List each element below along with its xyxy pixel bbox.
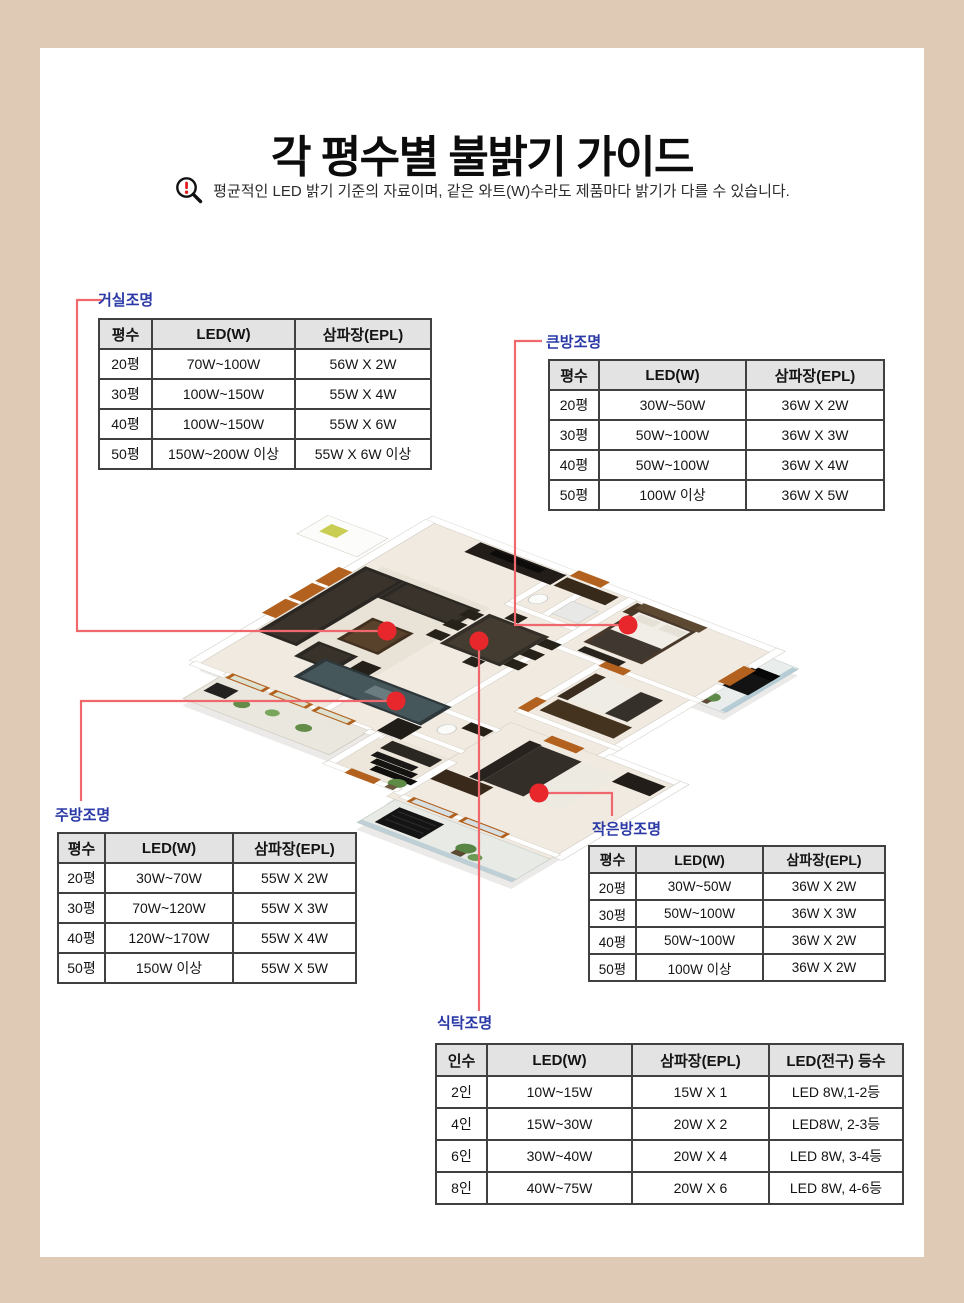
data-cell: 100W~150W: [152, 409, 295, 439]
data-cell: 20평: [58, 863, 105, 893]
header-cell: 삼파장(EPL): [632, 1044, 769, 1076]
table-row: 20평 70W~100W 56W X 2W: [99, 349, 431, 379]
header-cell: LED(W): [636, 846, 763, 873]
kitchen-table-label: 주방조명: [55, 804, 110, 825]
data-cell: 70W~100W: [152, 349, 295, 379]
data-cell: 55W X 3W: [233, 893, 356, 923]
data-cell: 20W X 4: [632, 1140, 769, 1172]
header-cell: 평수: [549, 360, 599, 390]
data-cell: 20평: [589, 873, 636, 900]
table-row: 40평 120W~170W 55W X 4W: [58, 923, 356, 953]
data-cell: 100W 이상: [599, 480, 746, 510]
data-cell: 50평: [99, 439, 152, 469]
data-cell: 36W X 2W: [746, 390, 884, 420]
data-cell: 70W~120W: [105, 893, 233, 923]
table-row: 30평 70W~120W 55W X 3W: [58, 893, 356, 923]
table-row: 30평 100W~150W 55W X 4W: [99, 379, 431, 409]
data-cell: 56W X 2W: [295, 349, 431, 379]
data-cell: 40평: [549, 450, 599, 480]
data-cell: 30평: [99, 379, 152, 409]
data-cell: 50W~100W: [636, 927, 763, 954]
bigroom-table-label: 큰방조명: [546, 331, 601, 352]
table-row: 6인 30W~40W 20W X 4 LED 8W, 3-4등: [436, 1140, 903, 1172]
data-cell: 20W X 2: [632, 1108, 769, 1140]
data-cell: 30평: [589, 900, 636, 927]
data-cell: 55W X 4W: [295, 379, 431, 409]
data-cell: 50W~100W: [599, 420, 746, 450]
data-cell: 20평: [549, 390, 599, 420]
table-row: 40평 50W~100W 36W X 2W: [589, 927, 885, 954]
data-cell: 30W~50W: [599, 390, 746, 420]
data-cell: 40평: [58, 923, 105, 953]
data-cell: 36W X 4W: [746, 450, 884, 480]
table-row: 20평 30W~50W 36W X 2W: [549, 390, 884, 420]
data-cell: 15W X 1: [632, 1076, 769, 1108]
data-cell: 40평: [589, 927, 636, 954]
data-cell: 40평: [99, 409, 152, 439]
data-cell: 36W X 2W: [763, 873, 885, 900]
data-cell: 6인: [436, 1140, 487, 1172]
magnifier-alert-icon: [174, 175, 204, 205]
data-cell: 50W~100W: [599, 450, 746, 480]
infographic-page: 각 평수별 불밝기 가이드 평균적인 LED 밝기 기준의 자료이며, 같은 와…: [0, 0, 964, 1303]
header-cell: LED(W): [487, 1044, 632, 1076]
bigroom-table: 평수 LED(W) 삼파장(EPL) 20평 30W~50W 36W X 2W …: [548, 359, 885, 511]
kitchen-table: 평수 LED(W) 삼파장(EPL) 20평 30W~70W 55W X 2W …: [57, 832, 357, 984]
data-cell: 20평: [99, 349, 152, 379]
smallroom-table-label: 작은방조명: [592, 818, 661, 839]
data-cell: 55W X 2W: [233, 863, 356, 893]
header-cell: 삼파장(EPL): [746, 360, 884, 390]
dining-table: 인수 LED(W) 삼파장(EPL) LED(전구) 등수 2인 10W~15W…: [435, 1043, 904, 1205]
data-cell: 36W X 2W: [763, 927, 885, 954]
table-row: 50평 100W 이상 36W X 2W: [589, 954, 885, 981]
data-cell: 55W X 6W: [295, 409, 431, 439]
header-cell: LED(W): [105, 833, 233, 863]
data-cell: 40W~75W: [487, 1172, 632, 1204]
data-cell: 20W X 6: [632, 1172, 769, 1204]
table-row: 40평 50W~100W 36W X 4W: [549, 450, 884, 480]
data-cell: 15W~30W: [487, 1108, 632, 1140]
table-row: 4인 15W~30W 20W X 2 LED8W, 2-3등: [436, 1108, 903, 1140]
header-cell: 평수: [589, 846, 636, 873]
data-cell: 8인: [436, 1172, 487, 1204]
data-cell: LED8W, 2-3등: [769, 1108, 903, 1140]
living-table-label: 거실조명: [98, 289, 153, 310]
data-cell: 30W~50W: [636, 873, 763, 900]
header-cell: 인수: [436, 1044, 487, 1076]
data-cell: 10W~15W: [487, 1076, 632, 1108]
living-table: 평수 LED(W) 삼파장(EPL) 20평 70W~100W 56W X 2W…: [98, 318, 432, 470]
data-cell: 150W 이상: [105, 953, 233, 983]
data-cell: 36W X 3W: [746, 420, 884, 450]
table-row: 50평 100W 이상 36W X 5W: [549, 480, 884, 510]
table-row: 20평 30W~50W 36W X 2W: [589, 873, 885, 900]
data-cell: 100W 이상: [636, 954, 763, 981]
header-cell: LED(W): [599, 360, 746, 390]
header-cell: 삼파장(EPL): [233, 833, 356, 863]
header-cell: LED(W): [152, 319, 295, 349]
data-cell: 30W~40W: [487, 1140, 632, 1172]
table-row: 20평 30W~70W 55W X 2W: [58, 863, 356, 893]
data-cell: 50W~100W: [636, 900, 763, 927]
data-cell: 150W~200W 이상: [152, 439, 295, 469]
header-cell: 삼파장(EPL): [295, 319, 431, 349]
data-cell: 55W X 4W: [233, 923, 356, 953]
data-cell: 55W X 5W: [233, 953, 356, 983]
dining-table-label: 식탁조명: [437, 1012, 492, 1033]
header-cell: LED(전구) 등수: [769, 1044, 903, 1076]
data-cell: 36W X 5W: [746, 480, 884, 510]
data-cell: LED 8W,1-2등: [769, 1076, 903, 1108]
data-cell: 50평: [58, 953, 105, 983]
table-row: 40평 100W~150W 55W X 6W: [99, 409, 431, 439]
data-cell: 100W~150W: [152, 379, 295, 409]
data-cell: 120W~170W: [105, 923, 233, 953]
data-cell: 30W~70W: [105, 863, 233, 893]
notice-text: 평균적인 LED 밝기 기준의 자료이며, 같은 와트(W)수라도 제품마다 밝…: [213, 180, 790, 201]
data-cell: LED 8W, 3-4등: [769, 1140, 903, 1172]
smallroom-table: 평수 LED(W) 삼파장(EPL) 20평 30W~50W 36W X 2W …: [588, 845, 886, 982]
data-cell: 2인: [436, 1076, 487, 1108]
table-row: 30평 50W~100W 36W X 3W: [589, 900, 885, 927]
data-cell: 36W X 3W: [763, 900, 885, 927]
data-cell: 36W X 2W: [763, 954, 885, 981]
data-cell: LED 8W, 4-6등: [769, 1172, 903, 1204]
table-row: 2인 10W~15W 15W X 1 LED 8W,1-2등: [436, 1076, 903, 1108]
table-row: 50평 150W 이상 55W X 5W: [58, 953, 356, 983]
header-cell: 삼파장(EPL): [763, 846, 885, 873]
notice-row: 평균적인 LED 밝기 기준의 자료이며, 같은 와트(W)수라도 제품마다 밝…: [0, 175, 964, 205]
header-cell: 평수: [99, 319, 152, 349]
data-cell: 50평: [549, 480, 599, 510]
data-cell: 55W X 6W 이상: [295, 439, 431, 469]
table-row: 30평 50W~100W 36W X 3W: [549, 420, 884, 450]
table-row: 8인 40W~75W 20W X 6 LED 8W, 4-6등: [436, 1172, 903, 1204]
header-cell: 평수: [58, 833, 105, 863]
data-cell: 4인: [436, 1108, 487, 1140]
data-cell: 30평: [549, 420, 599, 450]
data-cell: 50평: [589, 954, 636, 981]
data-cell: 30평: [58, 893, 105, 923]
table-row: 50평 150W~200W 이상 55W X 6W 이상: [99, 439, 431, 469]
